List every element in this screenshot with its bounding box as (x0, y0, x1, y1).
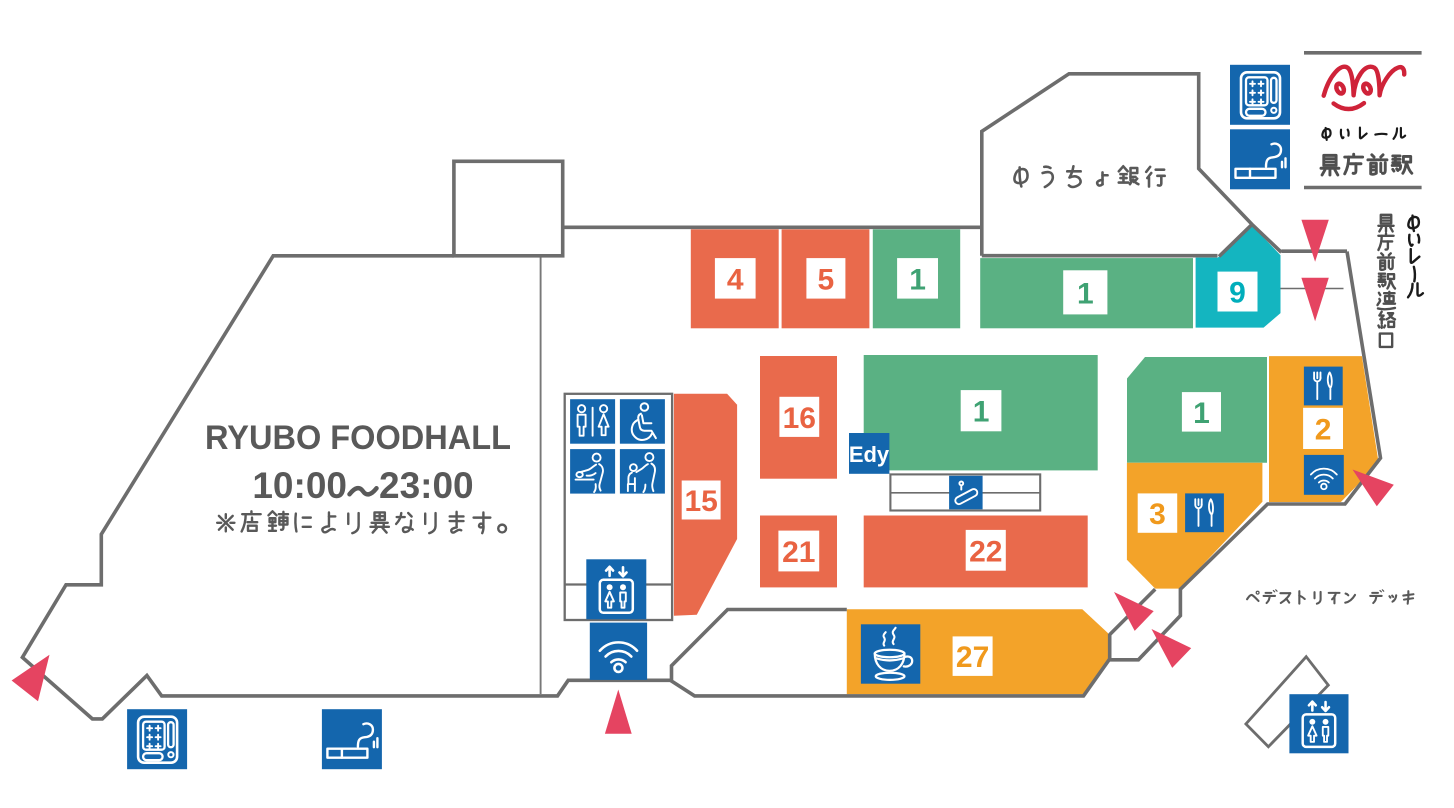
svg-text:10:00: 10:00 (252, 465, 347, 506)
svg-text:16: 16 (783, 402, 816, 435)
svg-text:22: 22 (969, 535, 1002, 568)
svg-text:9: 9 (1229, 277, 1246, 310)
svg-text:15: 15 (685, 485, 718, 518)
svg-text:21: 21 (782, 536, 815, 569)
svg-text:4: 4 (727, 263, 744, 296)
svg-text:2: 2 (1315, 413, 1332, 446)
svg-text:1: 1 (1193, 397, 1210, 430)
svg-text:1: 1 (909, 263, 926, 296)
svg-text:5: 5 (818, 263, 835, 296)
svg-text:RYUBO FOODHALL: RYUBO FOODHALL (205, 419, 511, 457)
svg-text:27: 27 (956, 641, 989, 674)
svg-text:3: 3 (1149, 498, 1166, 531)
svg-text:23:00: 23:00 (379, 465, 474, 506)
svg-text:1: 1 (1077, 277, 1094, 310)
svg-text:1: 1 (973, 396, 990, 429)
svg-text:Edy: Edy (849, 442, 890, 467)
